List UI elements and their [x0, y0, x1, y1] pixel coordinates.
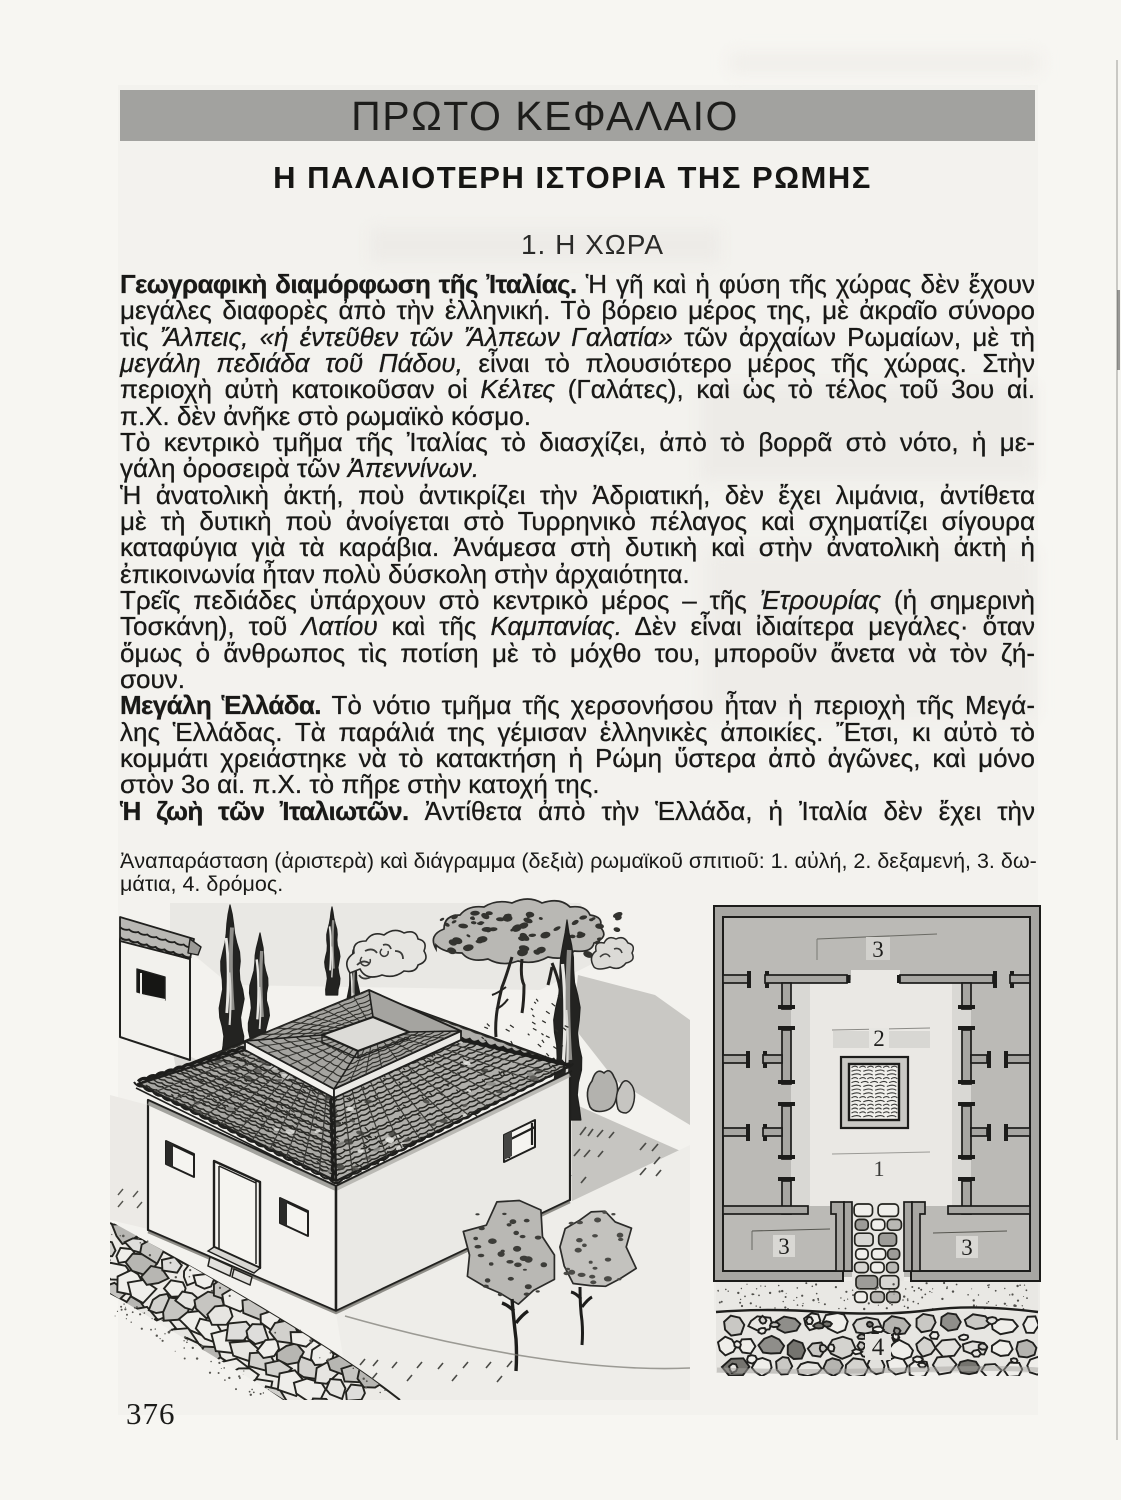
svg-text:2: 2: [873, 1026, 885, 1051]
svg-text:3: 3: [961, 1235, 973, 1260]
svg-text:4: 4: [872, 1334, 885, 1361]
svg-text:3: 3: [778, 1234, 790, 1259]
svg-text:3: 3: [872, 937, 884, 962]
svg-text:1: 1: [874, 1156, 885, 1181]
